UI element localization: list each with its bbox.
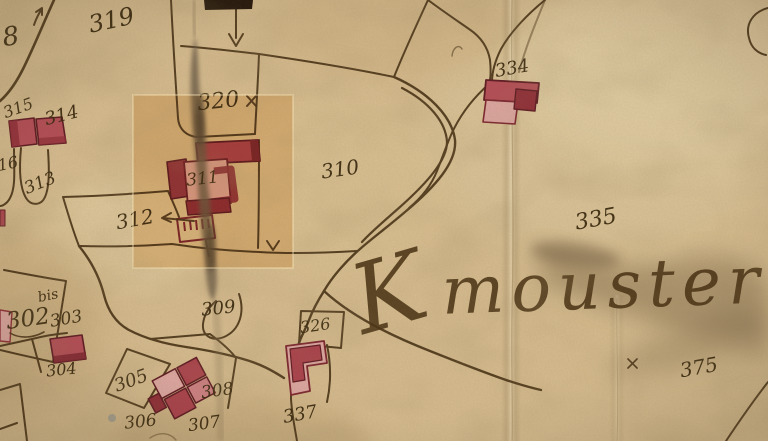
- cadastral-map: 8319320310311312313314315316334335375302…: [0, 0, 768, 441]
- vignette: [0, 0, 768, 441]
- map-viewport: 8319320310311312313314315316334335375302…: [0, 0, 768, 441]
